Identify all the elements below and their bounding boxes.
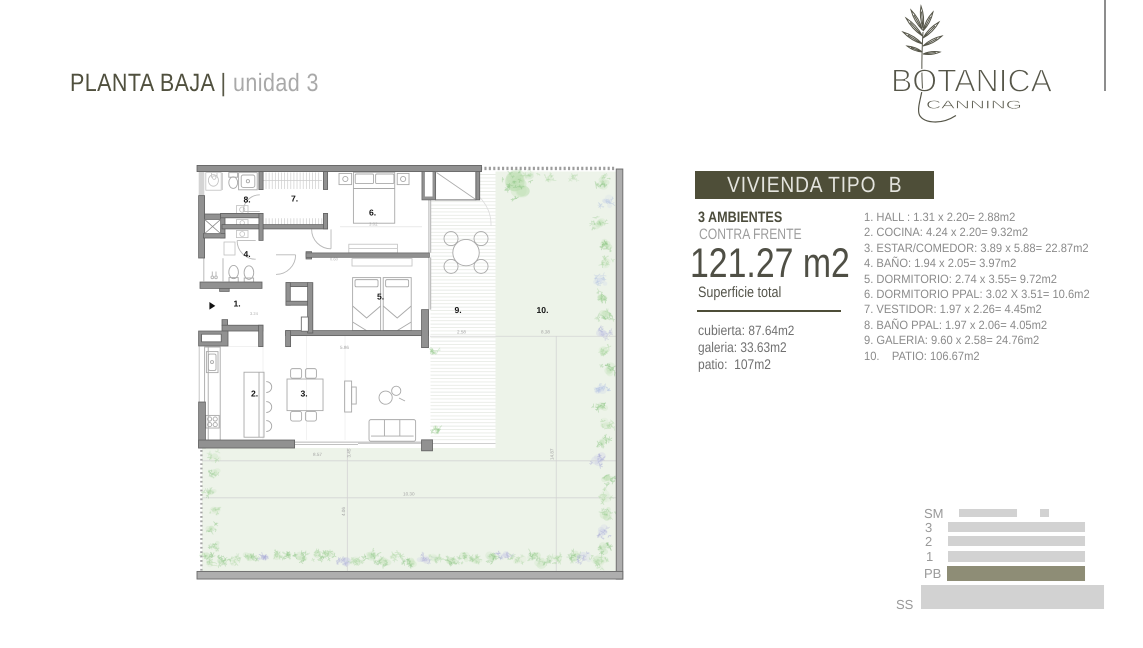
svg-text:5.: 5. [377, 292, 384, 302]
svg-text:8.57: 8.57 [313, 452, 322, 457]
svg-text:2.: 2. [251, 389, 258, 399]
svg-text:8.38: 8.38 [541, 330, 550, 335]
svg-text:3.45: 3.45 [347, 448, 352, 457]
svg-text:7.: 7. [291, 194, 298, 204]
svg-text:4.06: 4.06 [341, 507, 346, 516]
svg-text:10.: 10. [537, 305, 549, 315]
svg-text:9.: 9. [455, 305, 462, 315]
svg-text:2.58: 2.58 [457, 330, 466, 335]
svg-text:10.30: 10.30 [403, 491, 415, 496]
svg-text:1.: 1. [234, 299, 241, 309]
svg-text:3.02: 3.02 [369, 222, 378, 227]
svg-text:6.: 6. [369, 208, 376, 218]
svg-text:14.87: 14.87 [550, 448, 555, 460]
svg-text:4.: 4. [244, 249, 251, 259]
svg-text:5.86: 5.86 [340, 345, 349, 350]
svg-text:3.24: 3.24 [250, 311, 259, 316]
svg-text:3.: 3. [301, 389, 308, 399]
svg-text:8.: 8. [244, 195, 251, 205]
